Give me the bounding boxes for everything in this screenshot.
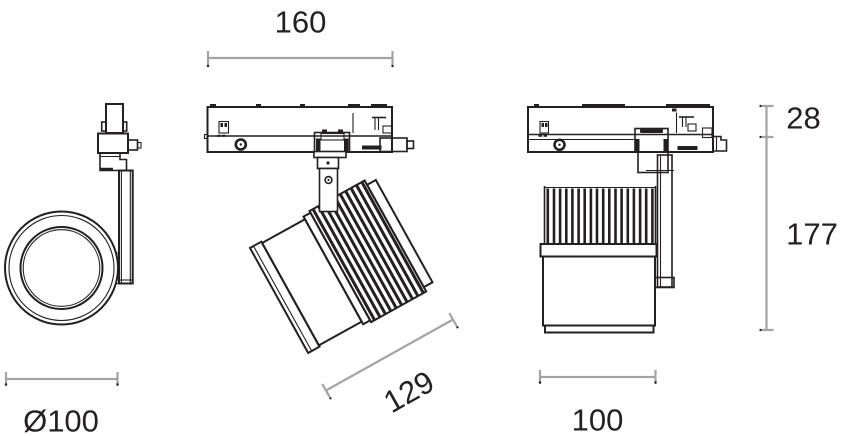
lamp-body-tilted [248,176,435,356]
technical-drawing-canvas: Ø100 160 [0,0,842,436]
dim-label-body-height: 177 [786,217,838,252]
dimension-heights: 28 177 [759,101,837,332]
view-front: 160 [205,5,459,420]
screw-head [555,140,565,150]
dimension-body-width: 100 [539,370,657,436]
lens-rim [545,326,654,333]
adapter-knob [128,140,138,150]
terminal-box [703,128,713,138]
dim-label-track-width: 160 [275,5,327,40]
track-stem [106,104,123,133]
track-adapter-front [205,104,414,152]
view-side-left: Ø100 [5,104,141,436]
arm-right-view [655,155,674,288]
stem-mount [635,129,668,153]
screw-head [236,140,246,150]
dim-label-body-width: 100 [572,403,624,436]
wiring-terminals [353,113,392,150]
dimension-diameter: Ø100 [5,372,119,436]
heatsink-side [545,186,656,244]
end-connector-side [713,137,727,152]
yoke-stem-front [314,152,346,212]
housing-ring [541,244,657,257]
lamp-housing-side [541,244,657,333]
dimension-track-width: 160 [207,5,394,68]
wiring-terminals [672,109,698,151]
lens-circle [5,212,118,325]
lamp-housing [543,257,655,326]
lamp-housing [262,219,362,345]
arm-left-view [119,171,133,284]
dim-label-body-length: 129 [378,364,440,420]
end-connector-front [380,138,414,152]
dimension-body-length: 129 [322,313,458,420]
stem-nub-right [123,122,127,131]
track-adapter-side [98,104,141,171]
stem-nub-left [102,122,106,131]
adapter-body-side [98,134,128,154]
dim-label-adapter-height: 28 [786,101,820,136]
stem-mount [315,130,350,153]
track-spotlight-drawing: Ø100 160 [0,0,842,436]
track-adapter-right [528,104,727,152]
phase-selector [217,122,228,137]
dim-label-diameter: Ø100 [23,404,99,436]
view-side-right: 28 177 100 [528,101,838,436]
